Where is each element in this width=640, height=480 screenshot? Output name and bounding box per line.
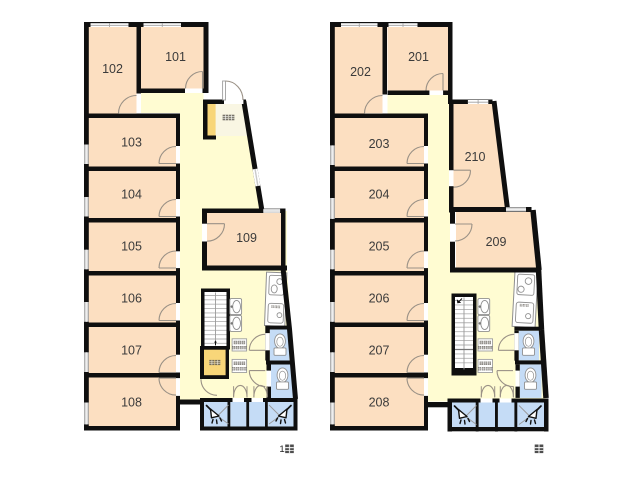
svg-text:1: 1 — [279, 444, 284, 455]
svg-text:204: 204 — [369, 188, 390, 202]
svg-text:103: 103 — [121, 136, 142, 150]
svg-text:108: 108 — [121, 396, 142, 410]
svg-text:107: 107 — [121, 344, 142, 358]
svg-text:201: 201 — [408, 50, 429, 64]
svg-text:203: 203 — [369, 137, 390, 151]
svg-text:101: 101 — [165, 50, 186, 64]
svg-text:206: 206 — [369, 292, 390, 306]
svg-text:106: 106 — [121, 292, 142, 306]
svg-text:209: 209 — [486, 235, 507, 249]
svg-text:210: 210 — [465, 150, 486, 164]
svg-text:104: 104 — [121, 188, 142, 202]
svg-text:205: 205 — [369, 240, 390, 254]
svg-text:105: 105 — [121, 240, 142, 254]
svg-text:202: 202 — [350, 65, 371, 79]
svg-text:102: 102 — [102, 62, 123, 76]
svg-text:109: 109 — [236, 231, 257, 245]
svg-text:207: 207 — [369, 344, 390, 358]
svg-text:208: 208 — [369, 396, 390, 410]
